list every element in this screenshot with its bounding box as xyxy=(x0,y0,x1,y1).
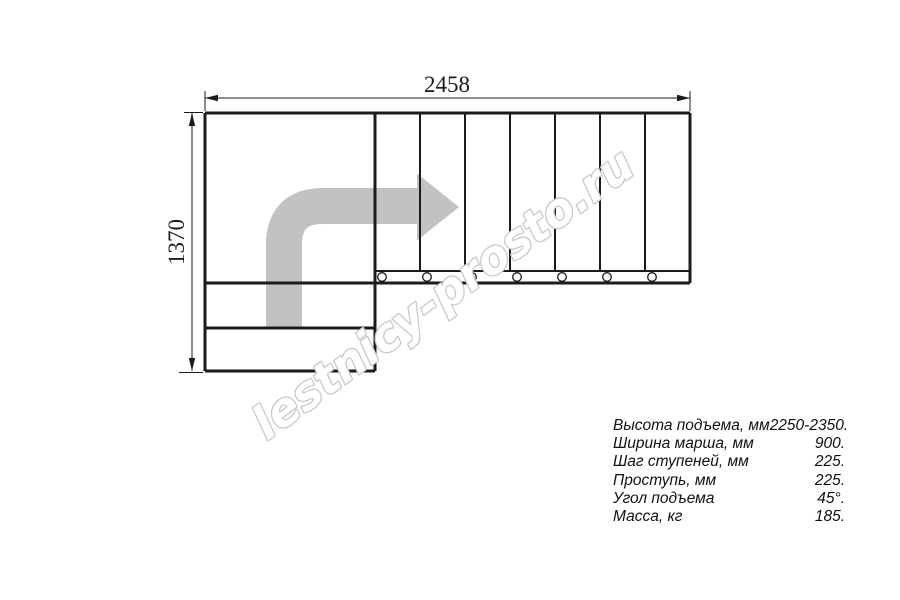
spec-value: 900. xyxy=(815,435,845,453)
spec-row-step-pitch: Шаг ступеней, мм 225. xyxy=(613,453,845,471)
spec-label: Угол подъема xyxy=(613,490,714,508)
height-dimension-label: 1370 xyxy=(164,219,189,265)
arrowhead-right xyxy=(677,95,690,101)
spec-value: 185. xyxy=(815,508,845,526)
dimension-arrowheads xyxy=(189,95,690,371)
spec-row-height: Высота подъема, мм 2250-2350. xyxy=(613,417,845,435)
spec-value: 225. xyxy=(815,472,845,490)
spec-label: Высота подъема, мм xyxy=(613,417,770,435)
specs-table: Высота подъема, мм 2250-2350. Ширина мар… xyxy=(613,417,845,526)
spec-row-march-width: Ширина марша, мм 900. xyxy=(613,435,845,453)
spec-label: Ширина марша, мм xyxy=(613,435,754,453)
arrowhead-left xyxy=(205,95,218,101)
arrowhead-top xyxy=(189,113,195,126)
spec-value: 45°. xyxy=(817,490,845,508)
joint-circle xyxy=(558,273,567,282)
width-dimension-label: 2458 xyxy=(424,72,470,97)
spec-label: Проступь, мм xyxy=(613,472,716,490)
spec-row-tread: Проступь, мм 225. xyxy=(613,472,845,490)
spec-row-angle: Угол подъема 45°. xyxy=(613,490,845,508)
spec-row-mass: Масса, кг 185. xyxy=(613,508,845,526)
joint-circle xyxy=(648,273,657,282)
spec-value: 2250-2350. xyxy=(770,417,848,435)
joint-circle xyxy=(603,273,612,282)
direction-arrow-head xyxy=(417,174,459,241)
arrowhead-bottom xyxy=(189,358,195,371)
spec-label: Шаг ступеней, мм xyxy=(613,453,749,471)
watermark-text: lestnicy-prosto.ru xyxy=(242,137,644,450)
spec-value: 225. xyxy=(815,453,845,471)
joint-circle xyxy=(378,273,387,282)
spec-label: Масса, кг xyxy=(613,508,682,526)
blueprint-page: 2458 1370 lestnicy-prosto.ru Высота подъ… xyxy=(0,0,900,600)
